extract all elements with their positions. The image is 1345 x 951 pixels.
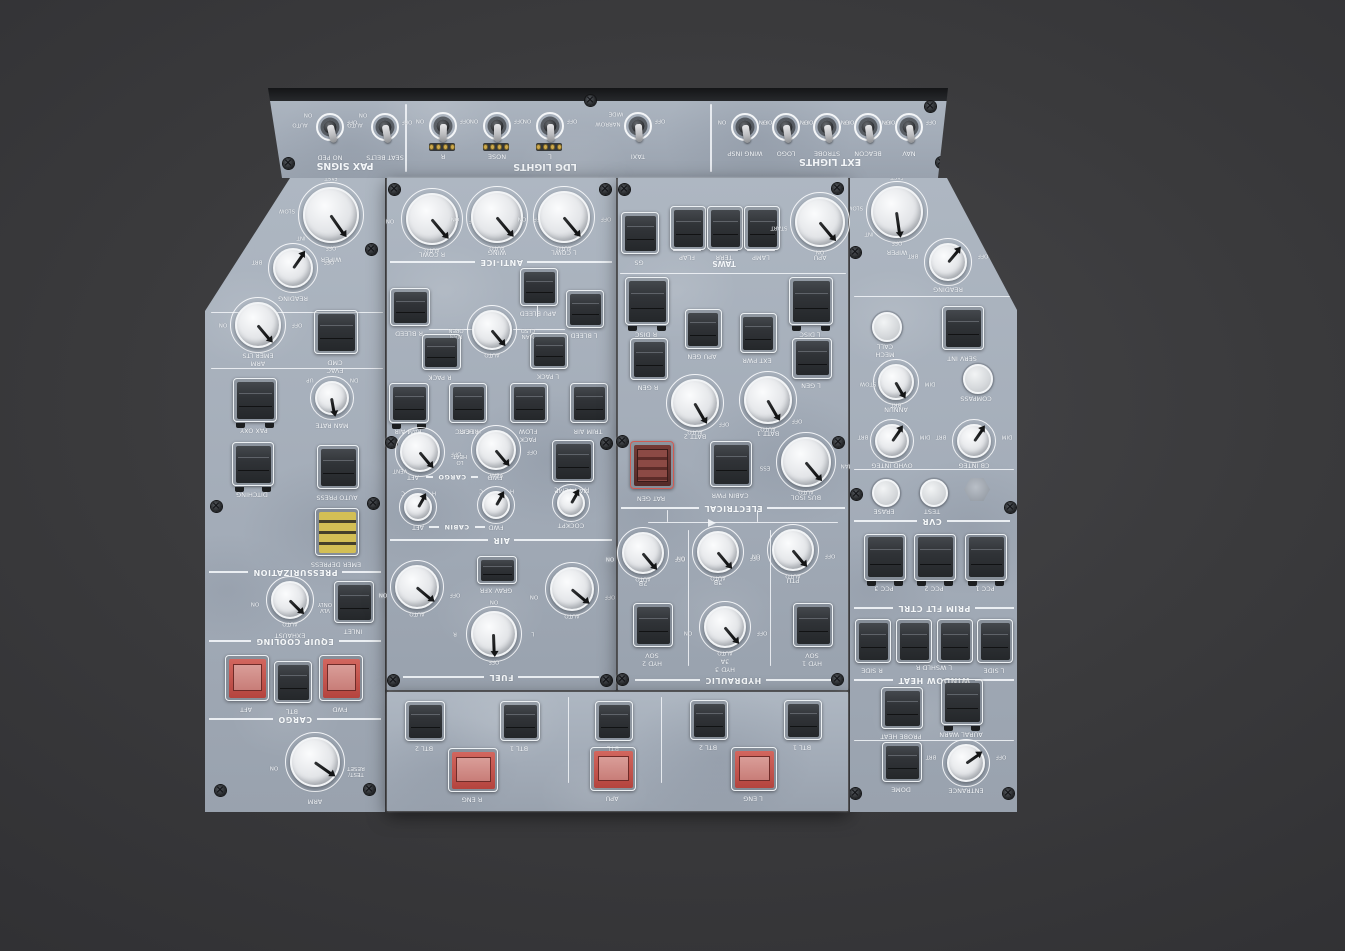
- prim-flt-ctrl-section-label: PRIM FLT CTRL: [898, 604, 970, 613]
- overhead-center-right-panel: GSFLAPTERRLAMPTAWSSTARTOFFONAPUR DISCL D…: [618, 178, 848, 690]
- screw-icon: [851, 489, 862, 500]
- gen-r-button[interactable]: [630, 338, 668, 380]
- temp-cabin-section: CABIN: [429, 522, 485, 532]
- cowl-l-anti-ice-knob[interactable]: [538, 191, 590, 243]
- ldg-light-nose-toggle-label: NOSE: [479, 152, 515, 160]
- fire-btl-1-l-button[interactable]: [784, 700, 822, 740]
- screw-icon: [368, 498, 379, 509]
- entrance-light-knob-mark: BRT: [918, 753, 944, 759]
- wiper-l-knob-mark: INT: [288, 234, 314, 240]
- hyd-2b-knob-label: 2B: [632, 579, 654, 587]
- elec-schematic-line: [648, 522, 838, 523]
- no-ped-toggle-mark: AUTO: [287, 121, 313, 127]
- hyd-2b-knob[interactable]: [622, 532, 664, 574]
- taws-lamp-button-label: LAMP: [746, 253, 776, 261]
- strobe-light-toggle-mark: ON: [791, 118, 817, 124]
- cowl-r-anti-ice-knob-mark: ON: [377, 217, 403, 223]
- cvr-test-button-label: TEST: [918, 507, 946, 515]
- cargo-smoke-arm-knob[interactable]: [290, 737, 340, 787]
- window-heat-section: WINDOW HEAT: [854, 675, 1014, 685]
- cargo-vent-aft-label: AFT: [400, 473, 426, 481]
- indicator-lights: [536, 143, 562, 151]
- taws-tick: [673, 250, 701, 251]
- temp-cabin-aft-knob-mark: C: [390, 489, 416, 495]
- window-heat-r-side-button[interactable]: [855, 619, 891, 663]
- hyd-2-sov-button-label2: HYD 2: [639, 659, 665, 667]
- screw-icon: [600, 184, 611, 195]
- cargo-vent-aft-knob[interactable]: [400, 432, 440, 472]
- cargo-smoke-arm-knob-label: ARM: [302, 797, 328, 805]
- man-rate-knob-label: MAN RATE: [310, 421, 354, 429]
- pcc-3-button[interactable]: [864, 534, 906, 581]
- gs-inhib-button[interactable]: [621, 212, 659, 254]
- fire-apu-button[interactable]: [590, 747, 636, 791]
- screw-icon: [283, 158, 294, 169]
- apu-gen-button[interactable]: [685, 309, 722, 349]
- hyd-3a-knob[interactable]: [704, 606, 746, 648]
- screw-icon: [1003, 788, 1014, 799]
- man-rate-knob-mark: UP: [297, 376, 323, 382]
- fuel-xfeed-knob-mark: OFF: [481, 658, 507, 664]
- screw-icon: [389, 184, 400, 195]
- annun-knob-mark: STOW: [855, 380, 881, 386]
- taxi-light-toggle-lever[interactable]: [634, 124, 642, 142]
- bleed-l-button[interactable]: [566, 290, 604, 328]
- screw-icon: [211, 501, 222, 512]
- pack-l-button-label: L PACK: [528, 372, 568, 380]
- fire-l-eng-button-label: L ENG: [735, 794, 771, 802]
- apu-gen-button-label: APU GEN: [680, 352, 724, 360]
- taws-flap-button[interactable]: [670, 206, 706, 250]
- pack-flow-button[interactable]: [510, 383, 548, 423]
- no-ped-toggle-label: NO PED: [310, 153, 350, 161]
- hydraulic-section: HYDRAULIC: [635, 675, 831, 685]
- cargo-fwd-button-label: FWD: [327, 705, 353, 713]
- hyd-ptu-knob-mark: ON: [743, 552, 769, 558]
- taws-terr-button[interactable]: [707, 206, 743, 250]
- ovhd-integ-knob[interactable]: [875, 424, 909, 458]
- serv-int-button[interactable]: [942, 306, 984, 350]
- man-rate-knob[interactable]: [315, 381, 349, 415]
- fuel-pump-left-knob-mark: OFF: [442, 591, 468, 597]
- cargo-vent-fwd-knob[interactable]: [476, 430, 516, 470]
- cargo-aft-button-label: AFT: [233, 705, 259, 713]
- ldg-light-nose-toggle-lever[interactable]: [494, 124, 501, 142]
- emer-depress-button-label: EMER DEPRESS: [308, 560, 364, 568]
- nav-light-toggle-label: NAV: [891, 149, 927, 157]
- aural-warn-button-label: AURAL WARN: [936, 730, 986, 738]
- temp-aft-label: AFT: [405, 523, 431, 531]
- screw-icon: [617, 436, 628, 447]
- wiper-r-knob-mark: INT: [856, 230, 882, 236]
- screw-icon: [617, 674, 628, 685]
- trim-air-button[interactable]: [570, 383, 608, 423]
- screw-icon: [366, 244, 377, 255]
- fire-btl-2-l-button-label: BTL 2: [693, 743, 723, 751]
- nav-light-toggle-mark: OFF: [918, 118, 944, 124]
- cvr-test-button[interactable]: [920, 479, 948, 507]
- cargo-vent-fwd-knob-mark: LO HEAT: [449, 452, 471, 465]
- hyd-3a-knob-label: 3A: [714, 657, 736, 665]
- reading-r-knob-mark: OFF: [970, 252, 996, 258]
- gen-disc-r-button[interactable]: [625, 277, 669, 325]
- probe-heat-button[interactable]: [881, 687, 923, 729]
- cargo-vent-section-label: CARGO: [438, 473, 466, 481]
- screw-icon: [364, 784, 375, 795]
- cargo-btl-button[interactable]: [274, 661, 312, 703]
- xbleed-knob-mark: AUTO: [479, 351, 505, 357]
- bus-isol-knob[interactable]: [781, 437, 831, 487]
- fuel-xfeed-knob-mark: ON: [481, 598, 507, 604]
- cargo-smoke-arm-knob-mark: TEST/ RESET: [343, 764, 369, 777]
- screw-icon: [215, 785, 226, 796]
- temp-cockpit-knob[interactable]: [557, 489, 585, 517]
- cargo-vent-fwd-knob-mark: HI HEAT: [459, 427, 481, 433]
- bus-isol-knob-label: BUS ISOL: [785, 493, 827, 501]
- prim-flt-ctrl-section: PRIM FLT CTRL: [854, 603, 1014, 613]
- hyd-3b-knob[interactable]: [697, 531, 739, 573]
- wiper-l-knob-mark: OFF: [318, 244, 344, 250]
- equip-cooling-exhaust-knob-mark: ON: [242, 600, 268, 606]
- pcc-2-button-label: PCC 2: [919, 584, 949, 592]
- fuel-section: FUEL: [403, 672, 599, 682]
- reading-l-knob-mark: OFF: [316, 258, 342, 264]
- overhead-top-strip: ONAUTOOFFNO PEDONAUTOOFFSEAT BELTSONOFFR…: [268, 88, 948, 178]
- annun-knob-mark: DIM: [917, 380, 943, 386]
- reading-l-knob[interactable]: [273, 248, 313, 288]
- batt-2-knob-label: BATT 2: [677, 432, 713, 440]
- cargo-aft-button[interactable]: [225, 655, 269, 701]
- indicator-lights: [483, 143, 509, 151]
- pack-l-button[interactable]: [530, 333, 568, 369]
- ext-pwr-button[interactable]: [740, 313, 777, 353]
- divider: [854, 469, 1014, 470]
- compass-light-button-label: COMPASS: [953, 394, 999, 402]
- cargo-btl-button-label: BTL: [279, 707, 305, 715]
- screw-icon: [833, 437, 844, 448]
- ldg-light-nose-toggle-mark: ON: [461, 117, 487, 123]
- equip-cooling-section: EQUIP COOLING: [209, 636, 381, 646]
- fire-r-eng-button-label: R ENG: [454, 795, 490, 803]
- ldg-light-l-toggle-mark: ON: [514, 117, 540, 123]
- divider: [405, 104, 407, 172]
- pressurization-section: PRESSURIZATION: [209, 567, 381, 577]
- divider: [854, 296, 1014, 297]
- annun-knob[interactable]: [878, 364, 914, 400]
- logo-light-toggle-label: LOGO: [768, 149, 804, 157]
- fuel-xfeed-knob-mark: R: [442, 630, 468, 636]
- wing-insp-light-toggle-label: WING INSP: [720, 149, 770, 157]
- rat-gen-button-label: RAT GEN: [631, 494, 671, 502]
- hyd-2-sov-button-label: SOV: [639, 651, 665, 659]
- wing-anti-ice-knob-mark: ON: [442, 215, 468, 221]
- gen-l-button[interactable]: [792, 338, 832, 379]
- divider: [854, 740, 1014, 741]
- grav-xfr-button-label: GRAV XFR: [476, 586, 516, 594]
- gs-inhib-button-label: GS: [629, 258, 649, 266]
- cvr-mic-jack[interactable]: [964, 478, 990, 501]
- cb-integ-knob[interactable]: [957, 424, 991, 458]
- xbleed-knob[interactable]: [472, 310, 512, 350]
- cowl-l-anti-ice-knob-mark: ON: [509, 215, 535, 221]
- overhead-center-left-panel: ONOFFAUTOR COWLONOFFAUTOWINGONOFFAUTOL C…: [387, 178, 616, 690]
- fire-btl-1-l-button-label: BTL 1: [787, 743, 817, 751]
- taws-tick: [747, 250, 775, 251]
- wing-insp-light-toggle-mark: ON: [709, 118, 735, 124]
- gen-l-button-label: L GEN: [793, 381, 829, 389]
- ldg-light-r-toggle-label: R: [425, 152, 461, 160]
- aural-warn-button[interactable]: [941, 679, 983, 725]
- ram-air-button[interactable]: [389, 383, 429, 423]
- window-heat-wshld-r-button[interactable]: [896, 619, 932, 663]
- taxi-light-toggle-mark: NARROW: [588, 120, 628, 126]
- taxi-light-toggle-mark: OFF: [647, 117, 673, 123]
- screw-icon: [936, 157, 947, 168]
- fire-apu-button-label: APU: [599, 794, 625, 802]
- fuel-xfeed-knob[interactable]: [471, 611, 517, 657]
- temp-cockpit-knob-mark: H: [574, 485, 600, 491]
- divider: [710, 104, 712, 172]
- screw-icon: [925, 101, 936, 112]
- screw-icon: [850, 788, 861, 799]
- ldg-light-l-toggle-lever[interactable]: [546, 124, 554, 142]
- hyd-3a-knob-mark: ON: [675, 629, 701, 635]
- pcc-3-button-label: PCC 3: [869, 584, 899, 592]
- fire-l-eng-button[interactable]: [731, 747, 777, 791]
- fire-divider: [661, 697, 662, 783]
- recirc-button[interactable]: [449, 383, 487, 423]
- ext-pwr-button-label: EXT PWR: [735, 356, 779, 364]
- window-heat-r-side-button-label: R SIDE: [857, 666, 887, 674]
- overhead-left-panel: FASTSLOWINTOFFWIPERBRTOFFREADINGONOFFEME…: [205, 178, 385, 812]
- hyd-1-sov-button[interactable]: [793, 603, 833, 647]
- emer-lts-knob-label: EMER LTS: [233, 351, 283, 359]
- annun-knob-label: ANNUN: [878, 405, 914, 413]
- fuel-pump-left-knob[interactable]: [395, 565, 439, 609]
- gen-disc-l-button-label: L DISC: [790, 330, 830, 338]
- serv-int-button-label: SERV INT: [940, 354, 984, 362]
- taws-flap-button-label: FLAP: [672, 253, 702, 261]
- fire-btl-apu-button[interactable]: [595, 701, 633, 741]
- dome-light-button-label: DOME: [886, 785, 916, 793]
- reading-r-knob[interactable]: [929, 243, 967, 281]
- screw-icon: [388, 675, 399, 686]
- seat-belts-toggle-label: SEAT BELTS: [357, 153, 413, 161]
- batt-2-knob-mark: OFF: [711, 420, 737, 426]
- no-ped-toggle-mark: ON: [295, 111, 321, 117]
- taxi-light-toggle-mark: WIDE: [603, 110, 629, 116]
- reading-r-knob-label: READING: [923, 285, 973, 293]
- cvr-erase-button-label: ERASE: [868, 507, 900, 515]
- air-section-label: AIR: [493, 536, 510, 545]
- window-heat-wshld-l-button[interactable]: [937, 619, 973, 663]
- temp-cockpit-label: COCKPT: [551, 521, 591, 529]
- cargo-fwd-button[interactable]: [319, 655, 363, 701]
- hyd-1-sov-button-label2: HYD 1: [799, 659, 825, 667]
- cargo-vent-aft-knob-mark: VENT: [387, 467, 413, 473]
- equip-cooling-inlet-button-label: INLET: [338, 627, 368, 635]
- equip-cooling-inlet-button[interactable]: [334, 581, 374, 623]
- cargo-section-label: CARGO: [278, 715, 312, 724]
- evac-cmd-button[interactable]: [314, 310, 358, 354]
- taxi-light-toggle-label: TAXI: [620, 152, 656, 160]
- cabin-pwr-button-label: CABIN PWR: [707, 491, 753, 499]
- bleed-r-button[interactable]: [390, 288, 430, 326]
- equip-cooling-section-label: EQUIP COOLING: [256, 637, 334, 646]
- auto-press-button-label: AUTO PRESS: [314, 493, 360, 501]
- fire-r-eng-button[interactable]: [448, 748, 498, 792]
- hyd-ptu-knob-mark: OFF: [817, 552, 843, 558]
- cargo-vent-fwd-knob-mark: OFF: [519, 448, 545, 454]
- dome-light-button[interactable]: [882, 742, 922, 782]
- fuel-section-label: FUEL: [489, 673, 514, 682]
- equip-cooling-exhaust-knob[interactable]: [271, 581, 309, 619]
- rat-gen-button[interactable]: [630, 441, 674, 489]
- batt-1-knob-label: BATT 1: [750, 429, 786, 437]
- fire-btl-1-r-button[interactable]: [500, 701, 540, 741]
- pressurization-section-label: PRESSURIZATION: [253, 568, 338, 577]
- hyd-3b-knob-label: 3B: [707, 578, 729, 586]
- probe-heat-button-label: PROBE HEAT: [877, 732, 925, 740]
- screw-icon: [832, 183, 843, 194]
- ldg-light-l-toggle-label: L: [532, 152, 568, 160]
- cb-integ-knob-mark: BRT: [928, 433, 954, 439]
- temp-cabin-fwd-knob-mark: C: [468, 487, 494, 493]
- entrance-light-knob[interactable]: [947, 744, 985, 782]
- screw-icon: [601, 438, 612, 449]
- cargo-vent-section: CARGO: [426, 472, 478, 482]
- indicator-lights: [429, 143, 455, 151]
- fuel-xfeed-knob-mark: L: [520, 630, 546, 636]
- temp-cabin-fwd-knob-mark: H: [499, 487, 525, 493]
- ldg-light-r-toggle-lever[interactable]: [439, 124, 447, 142]
- cowl-r-anti-ice-knob-label: R COWL: [412, 250, 452, 258]
- screw-icon: [619, 184, 630, 195]
- fire-btl-1-r-button-label: BTL 1: [504, 744, 534, 752]
- entrance-light-knob-mark: OFF: [988, 753, 1014, 759]
- apu-master-knob[interactable]: [795, 197, 845, 247]
- electrical-section-label: ELECTRICAL: [704, 504, 763, 513]
- fire-btl-2-r-button[interactable]: [405, 701, 445, 741]
- pax-signs-title: PAX SIGNS: [300, 160, 390, 171]
- temp-cabin-aft-knob-mark: H: [421, 489, 447, 495]
- hyd-3a-knob-mark: AUTO: [712, 649, 738, 655]
- seat-belts-toggle-mark: ON: [350, 111, 376, 117]
- emer-lts-knob-label2: ARM: [233, 359, 283, 367]
- screw-icon: [601, 675, 612, 686]
- overhead-panel-scene: ONAUTOOFFNO PEDONAUTOOFFSEAT BELTSONOFFR…: [0, 0, 1345, 951]
- reading-l-knob-label: READING: [268, 294, 318, 302]
- nav-light-toggle-mark: ON: [873, 118, 899, 124]
- temp-cabin-aft-knob[interactable]: [404, 493, 432, 521]
- cvr-erase-button[interactable]: [872, 479, 900, 507]
- beacon-light-toggle-mark: ON: [832, 118, 858, 124]
- apu-bleed-button[interactable]: [520, 268, 558, 306]
- man-temp-button[interactable]: [552, 440, 594, 482]
- cb-integ-knob-mark: DIM: [994, 433, 1020, 439]
- pcc-1-button-label: PCC 1: [970, 584, 1000, 592]
- mech-call-button-label: MECH CALL: [870, 342, 900, 357]
- cabin-pwr-button[interactable]: [710, 441, 752, 487]
- bleed-l-button-label: L BLEED: [564, 331, 604, 339]
- batt-1-knob-mark: OFF: [784, 417, 810, 423]
- screw-icon: [850, 247, 861, 258]
- hyd-ptu-knob[interactable]: [772, 529, 814, 571]
- ovhd-integ-knob-label: OVHD INTEG: [864, 461, 920, 469]
- hyd-3a-knob-mark: OFF: [749, 629, 775, 635]
- overhead-right-panel: FASTSLOWINTOFFWIPERBRTOFFREADINGMECH CAL…: [850, 178, 1017, 812]
- wiper-l-knob-mark: SLOW: [274, 207, 300, 213]
- grav-xfr-button[interactable]: [477, 556, 517, 584]
- window-heat-l-side-button[interactable]: [977, 619, 1013, 663]
- equip-cooling-exhaust-knob-mark: VLV ONLY: [314, 600, 336, 613]
- emer-lts-knob[interactable]: [235, 302, 281, 348]
- pcc-2-button[interactable]: [914, 534, 956, 581]
- fuel-pump-right-knob[interactable]: [550, 567, 594, 611]
- screw-icon: [1005, 502, 1016, 513]
- strobe-light-toggle-label: STROBE: [807, 149, 847, 157]
- hyd-1-sov-button-label: SOV: [799, 651, 825, 659]
- pcc-1-button[interactable]: [965, 534, 1007, 581]
- ditching-button-label: DITCHING: [230, 490, 274, 498]
- cvr-section-label: CVR: [922, 517, 942, 526]
- anti-ice-section-label: ANTI-ICE: [480, 258, 523, 267]
- temp-fwd-label: FWD: [483, 523, 509, 531]
- compass-light-button[interactable]: [963, 364, 993, 394]
- auto-press-button[interactable]: [317, 445, 359, 489]
- divider: [211, 368, 383, 369]
- fire-btl-2-l-button[interactable]: [690, 700, 728, 740]
- reading-r-knob-mark: BRT: [900, 252, 926, 258]
- screw-icon: [832, 674, 843, 685]
- ldg-light-r-toggle-mark: ON: [407, 117, 433, 123]
- gen-r-button-label: R GEN: [630, 383, 666, 391]
- ditching-button[interactable]: [232, 442, 274, 486]
- pax-oxy-button-label: PAX OXY: [234, 426, 274, 434]
- fuel-pump-left-knob-mark: AUTO: [404, 610, 430, 616]
- emer-depress-button[interactable]: [315, 508, 359, 556]
- hyd-2-sov-button[interactable]: [633, 603, 673, 647]
- emer-lts-knob-mark: OFF: [284, 321, 310, 327]
- air-section: AIR: [390, 535, 612, 545]
- divider: [620, 273, 846, 274]
- wing-anti-ice-knob-label: WING: [477, 248, 517, 256]
- pax-oxy-button[interactable]: [233, 378, 277, 422]
- fuel-pump-right-knob-mark: AUTO: [559, 612, 585, 618]
- temp-cabin-fwd-knob[interactable]: [482, 491, 510, 519]
- logo-light-toggle-mark: ON: [750, 118, 776, 124]
- fire-divider: [568, 697, 569, 783]
- bus-isol-knob-mark: ESS: [752, 464, 778, 470]
- overhead-fire-panel: BTL 2BTL 1R ENGBTLAPUBTL 2BTL 1L ENG: [387, 692, 848, 811]
- emer-lts-knob-mark: ON: [210, 321, 236, 327]
- ovhd-integ-knob-mark: BRT: [850, 433, 876, 439]
- hydraulic-section-label: HYDRAULIC: [705, 676, 761, 685]
- pack-r-button[interactable]: [422, 334, 461, 370]
- cargo-section: CARGO: [209, 714, 381, 724]
- temp-cockpit-knob-mark: C: [543, 485, 569, 491]
- entrance-light-knob-label: ENTRANCE: [942, 786, 990, 794]
- ldg-lights-title: LDG LIGHTS: [497, 161, 593, 172]
- hyd-ptu-knob-label: PTU: [780, 576, 806, 584]
- pack-r-button-label: R PACK: [420, 373, 460, 381]
- window-heat-wshld-label: L WSHLD R: [899, 663, 969, 671]
- gen-disc-l-button[interactable]: [789, 277, 833, 325]
- mech-call-button[interactable]: [872, 312, 902, 342]
- panel-top-edge: [268, 88, 948, 101]
- cvr-section: CVR: [854, 516, 1010, 526]
- beacon-light-toggle-label: BEACON: [848, 149, 888, 157]
